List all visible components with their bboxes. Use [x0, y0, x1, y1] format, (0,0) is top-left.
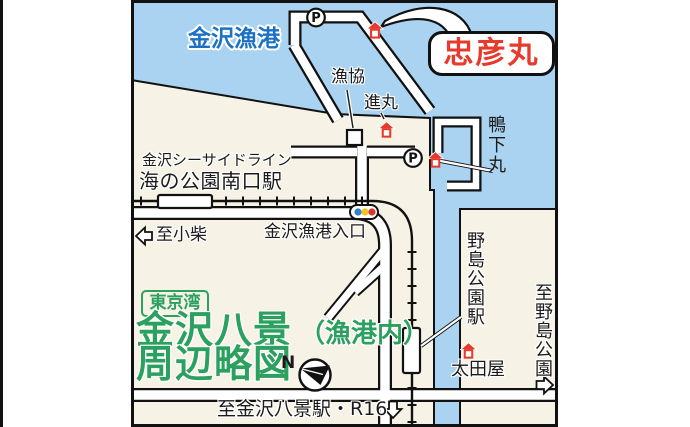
shinmaru-label: 進丸 [364, 95, 398, 112]
south-gate-station-marker [158, 195, 212, 208]
otaya-label: 太田屋 [451, 361, 505, 379]
compass-north-label: N [281, 355, 295, 372]
map-title-paren: （漁港内） [299, 321, 429, 347]
parking-letter: P [408, 152, 418, 167]
otaya-house-icon [461, 343, 477, 358]
to-koshiba-label: 至小柴 [156, 227, 207, 244]
port-entrance-label: 金沢漁港入口 [264, 224, 366, 241]
arrow-left-icon [136, 228, 152, 245]
to-nojima-park-label: 至野島公園 [533, 283, 551, 378]
tadahikomaru-callout: 忠彦丸 [428, 31, 555, 76]
map-title-line2: 周辺略図 [136, 345, 292, 383]
left-edge-border [0, 0, 3, 427]
to-hakkei-label: 至金沢八景駅・R16 [217, 400, 387, 419]
water-area-label: 金沢漁港 [188, 28, 280, 51]
fishing-coop-building [347, 130, 362, 145]
port-area-map: P P 金沢漁港 漁協 進丸 鴨下丸 金沢シーサイドライン 海の公 [131, 0, 558, 427]
parking-icon-top: P [307, 9, 325, 27]
traffic-signal-icon [350, 205, 378, 219]
parking-icon-dock: P [404, 149, 422, 167]
south-gate-station-label: 海の公園南口駅 [139, 171, 283, 191]
tadahikomaru-label: 忠彦丸 [444, 39, 540, 69]
seaside-line-label: 金沢シーサイドライン [142, 153, 292, 168]
parking-letter: P [311, 11, 321, 26]
shinmaru-house-icon [379, 122, 395, 137]
kamoshitamaru-label: 鴨下丸 [486, 115, 504, 175]
screenshot: P P 金沢漁港 漁協 進丸 鴨下丸 金沢シーサイドライン 海の公 [0, 0, 690, 427]
compass-icon [300, 360, 331, 391]
nojima-station-label: 野島公園駅 [465, 231, 483, 326]
fishing-coop-label: 漁協 [331, 69, 365, 86]
